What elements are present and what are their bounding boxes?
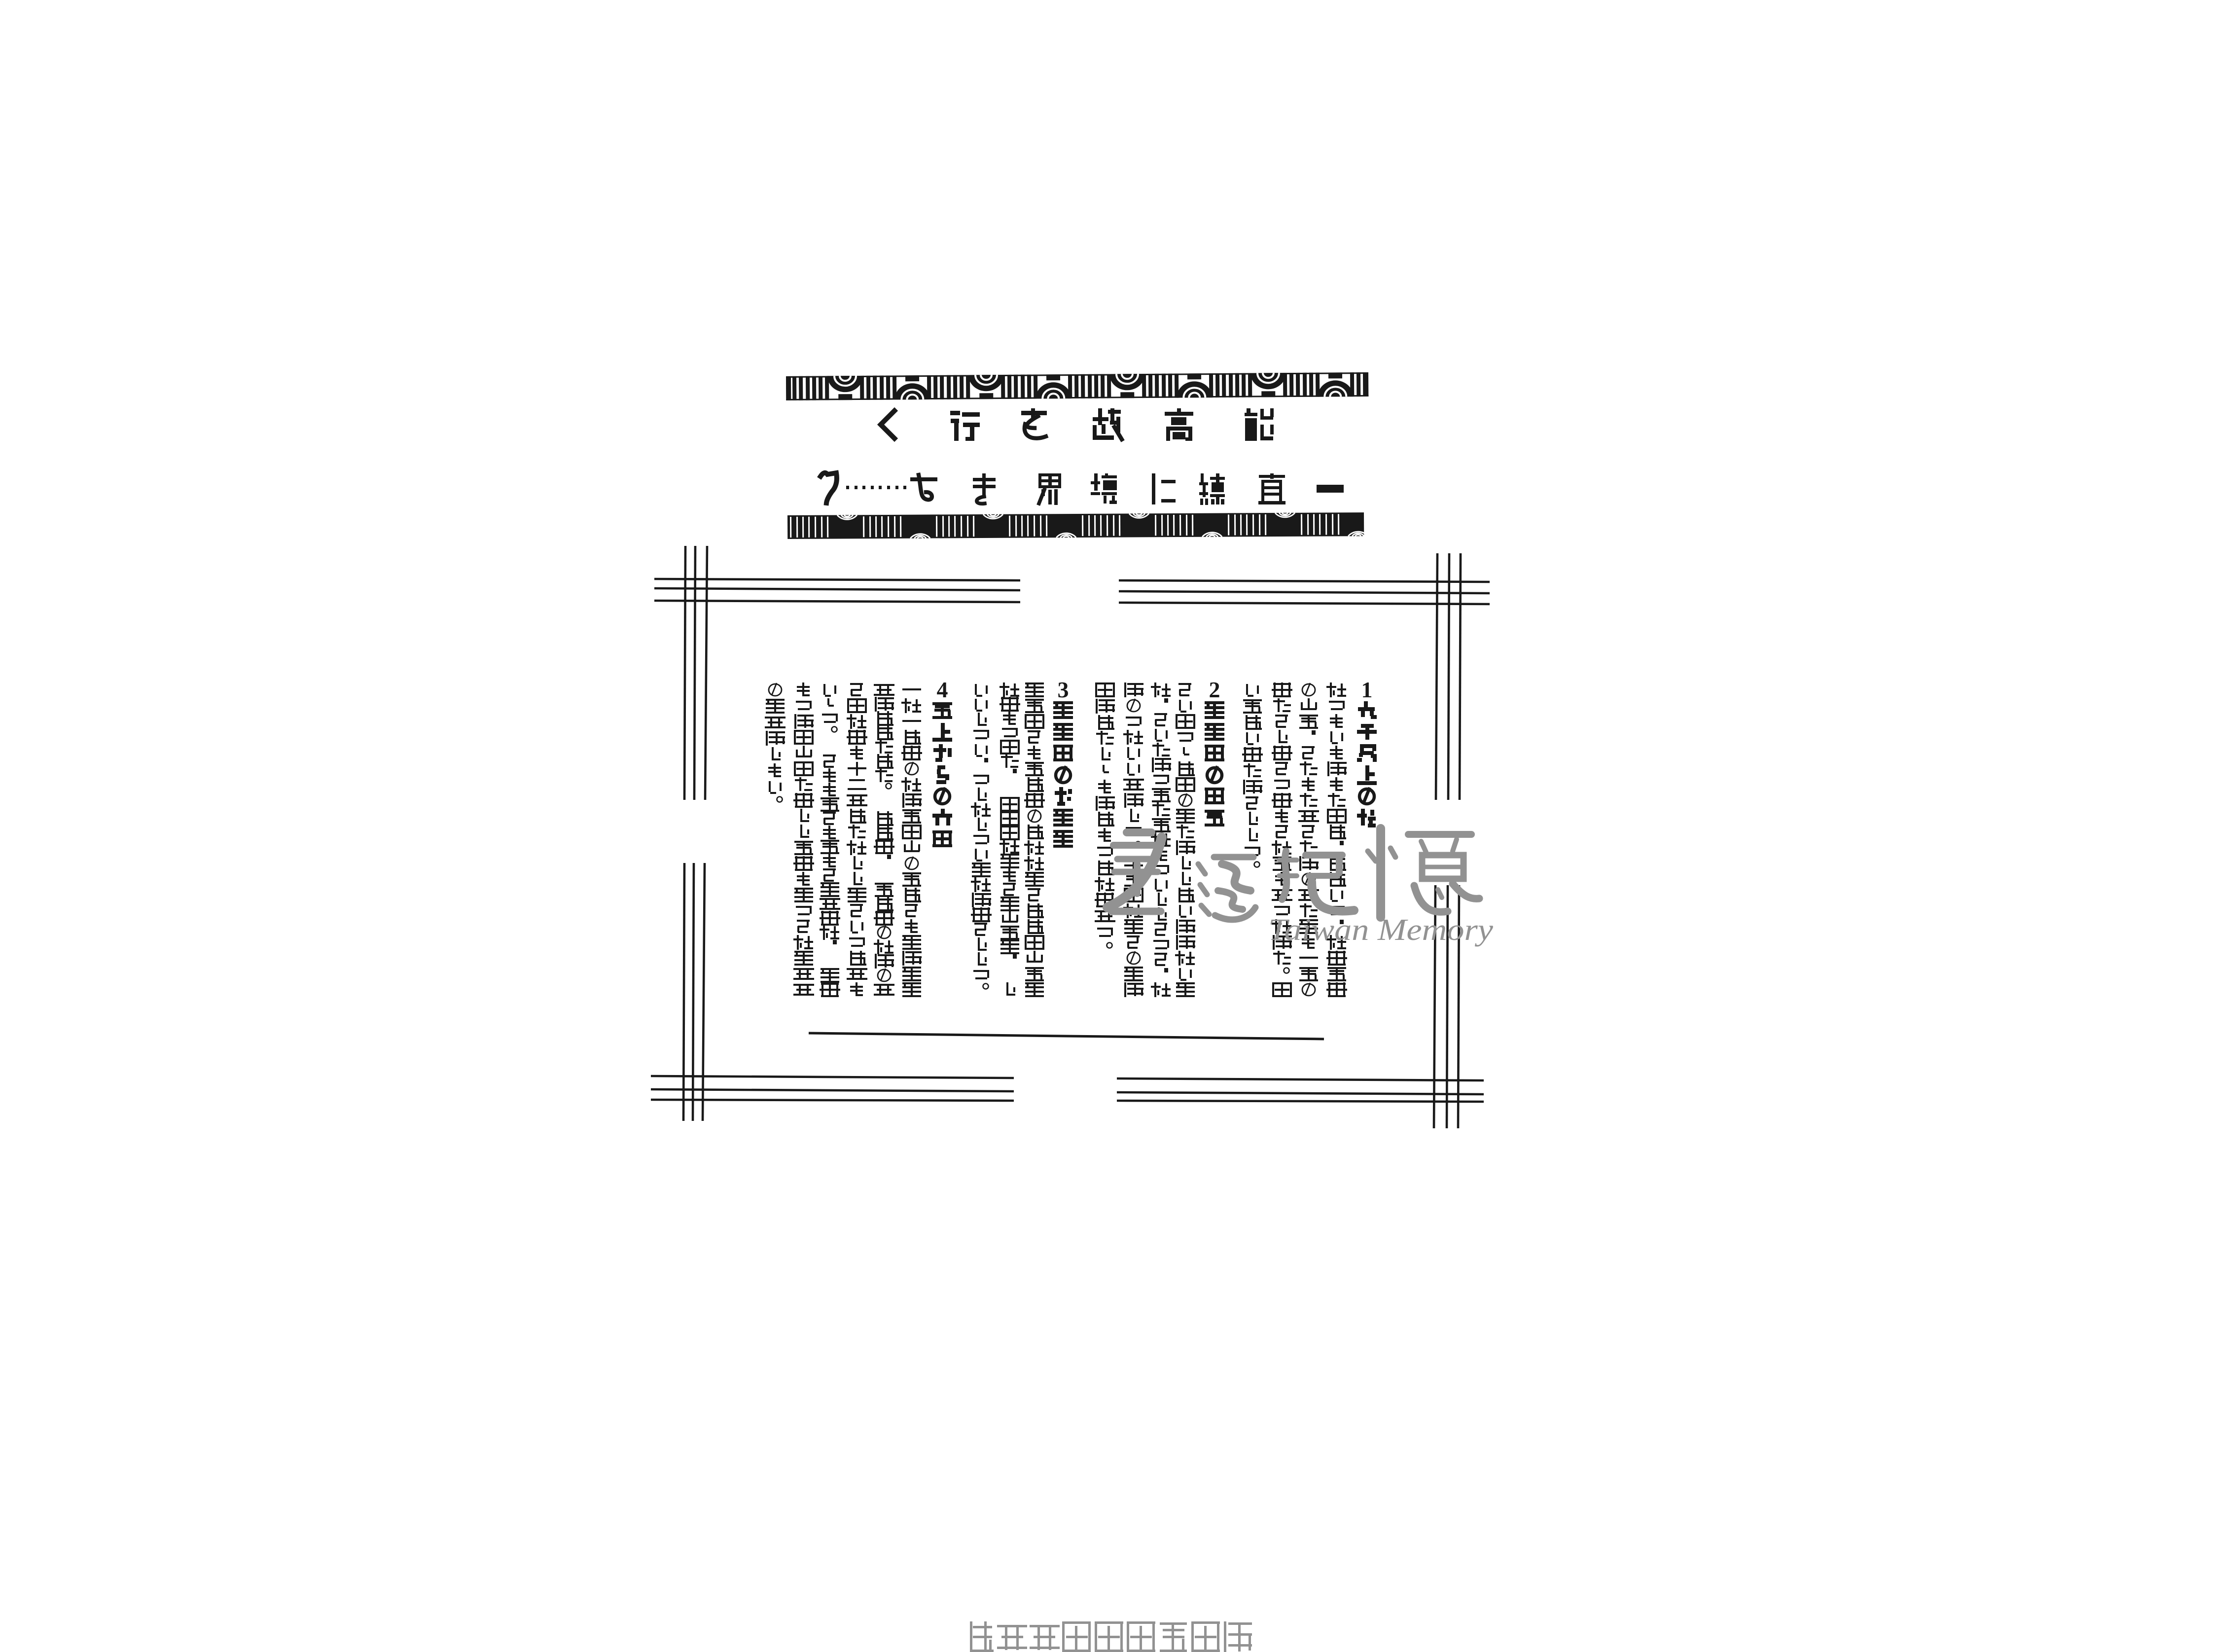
svg-text:1: 1 bbox=[1361, 677, 1373, 702]
svg-text:Taiwan Memory: Taiwan Memory bbox=[1268, 913, 1494, 947]
svg-text:3: 3 bbox=[1058, 677, 1069, 702]
svg-text:2: 2 bbox=[1209, 677, 1220, 702]
svg-text:4: 4 bbox=[937, 677, 948, 702]
